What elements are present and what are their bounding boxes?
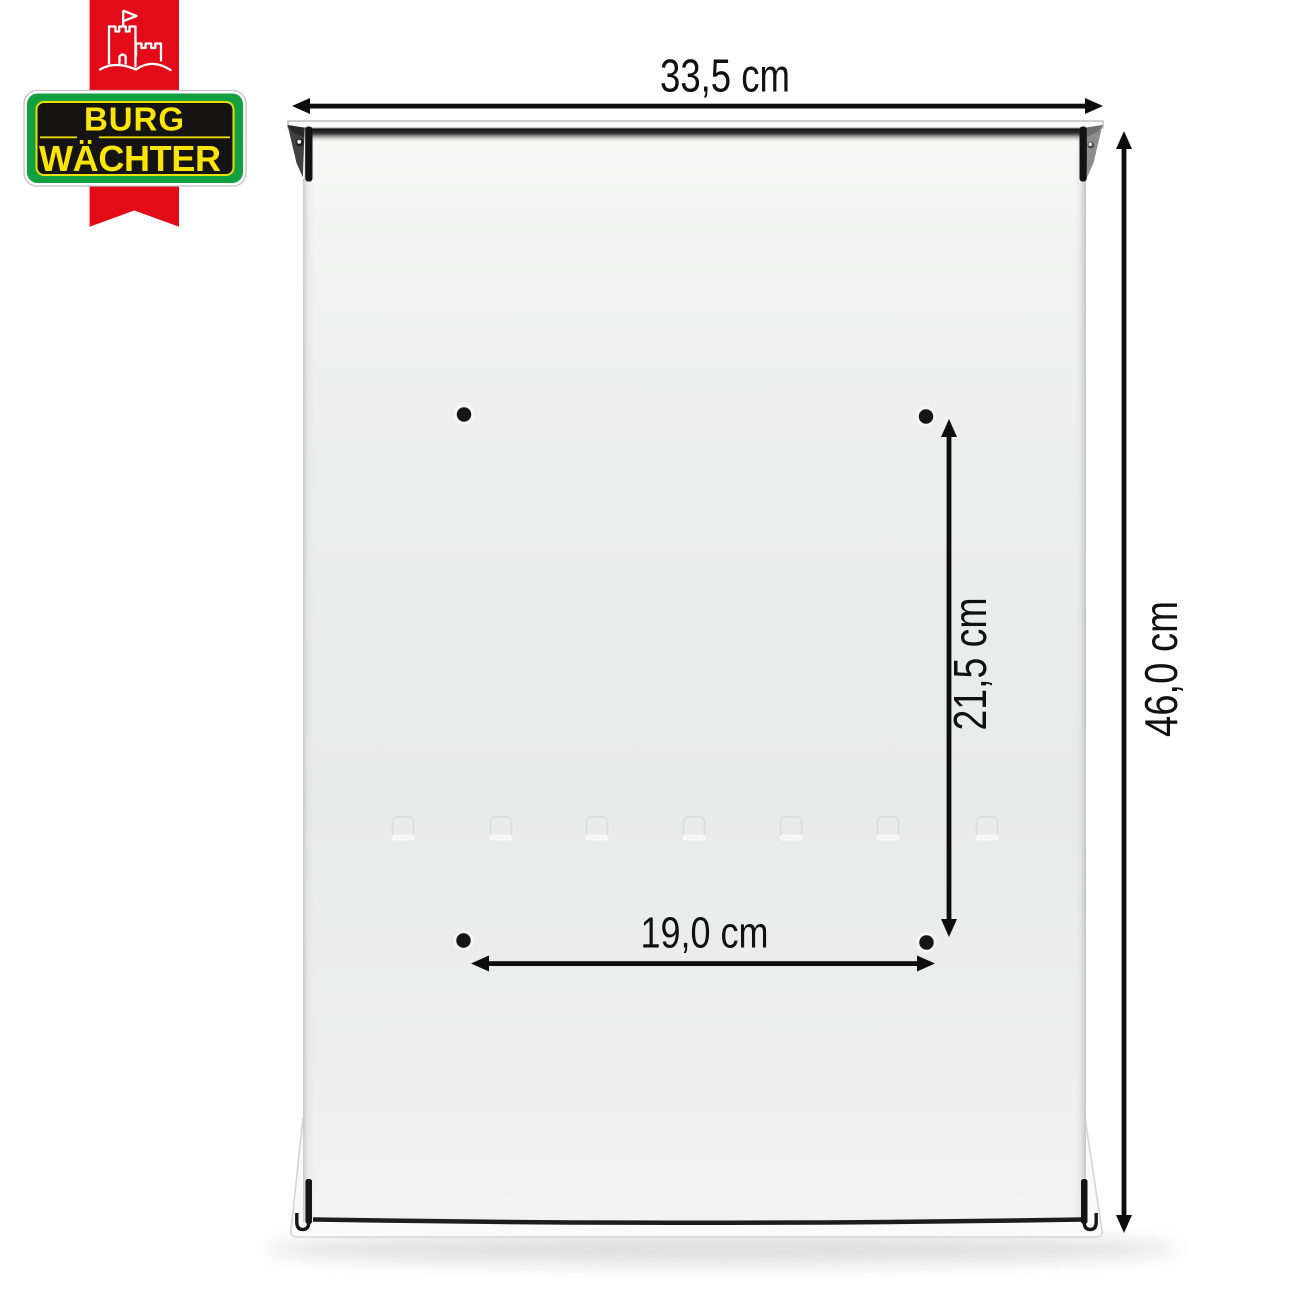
svg-text:46,0 cm: 46,0 cm — [1135, 601, 1187, 737]
svg-text:19,0 cm: 19,0 cm — [641, 909, 769, 958]
svg-text:WÄCHTER: WÄCHTER — [39, 138, 221, 179]
svg-text:BURG: BURG — [84, 100, 184, 137]
svg-text:21,5 cm: 21,5 cm — [944, 598, 996, 731]
svg-text:33,5 cm: 33,5 cm — [660, 50, 790, 102]
